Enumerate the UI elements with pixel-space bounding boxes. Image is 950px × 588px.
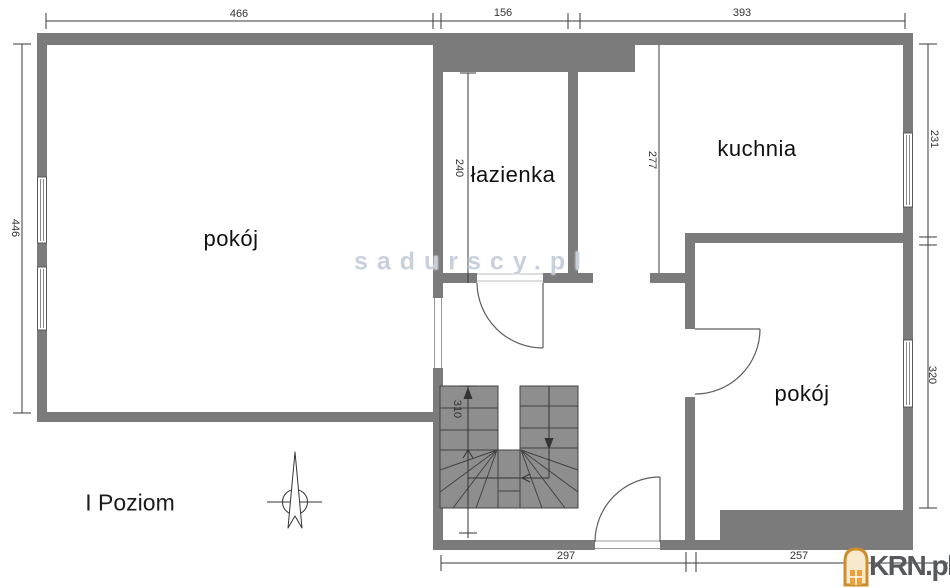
dimension-label-stairs: 310 — [451, 400, 463, 418]
door-bathroom — [477, 283, 543, 348]
door-exterior — [595, 477, 660, 542]
room-label-room2: pokój — [774, 381, 829, 407]
krn-logo-icon — [845, 549, 867, 585]
dimension-label-right-1: 231 — [928, 130, 940, 148]
dimension-label-bottom-1: 297 — [557, 550, 575, 562]
window-room2 — [904, 340, 913, 407]
window-kitchen — [904, 133, 913, 207]
door-room2 — [695, 329, 760, 394]
window-left-1 — [38, 177, 47, 243]
krn-logo-text: KRN.pl — [869, 550, 950, 582]
opening-exterior-door — [595, 540, 660, 550]
dimension-label-bottom-2: 257 — [790, 550, 808, 562]
dimension-label-top-2: 156 — [494, 7, 512, 19]
opening-room2-threshold — [685, 329, 695, 397]
floor-plan: 466 156 393 446 231 320 297 257 240 277 … — [0, 0, 950, 588]
window-left-2 — [38, 267, 47, 330]
dimension-label-top-1: 466 — [230, 8, 248, 20]
dimension-label-kitchen: 277 — [646, 151, 658, 169]
dimension-label-left-1: 446 — [9, 219, 21, 237]
dimension-label-top-3: 393 — [733, 7, 751, 19]
dimension-label-right-2: 320 — [926, 366, 938, 384]
dimension-label-bathroom: 240 — [453, 159, 465, 177]
level-title: I Poziom — [85, 490, 174, 517]
watermark-text: sadurscy.pl — [354, 248, 590, 277]
room-label-kitchen: kuchnia — [717, 136, 796, 162]
opening-room1 — [433, 298, 443, 368]
compass-north-icon — [267, 452, 322, 528]
room-label-room1: pokój — [203, 226, 258, 252]
room-label-bathroom: łazienka — [471, 162, 556, 188]
